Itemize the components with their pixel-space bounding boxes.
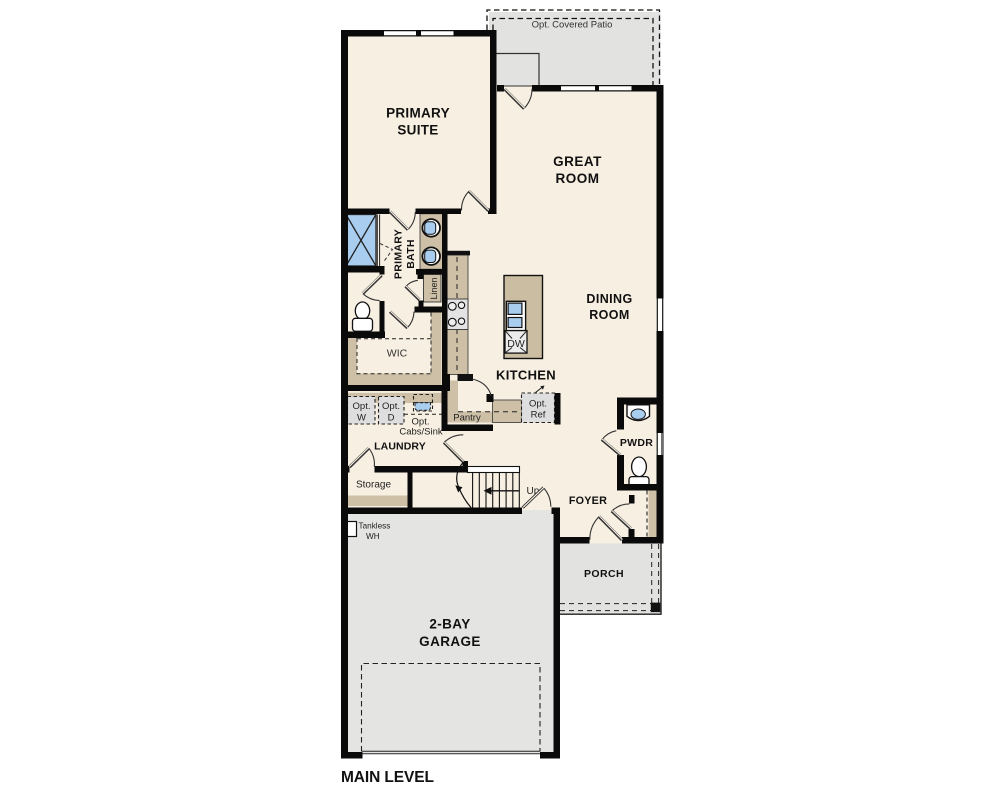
svg-text:ROOM: ROOM: [556, 171, 600, 186]
svg-text:PORCH: PORCH: [584, 568, 624, 580]
svg-text:WH: WH: [366, 532, 380, 541]
svg-text:WIC: WIC: [387, 348, 408, 360]
svg-text:ROOM: ROOM: [589, 308, 630, 322]
svg-text:2-BAY: 2-BAY: [429, 617, 470, 632]
svg-text:Tankless: Tankless: [359, 522, 391, 531]
svg-text:Opt. Covered Patio: Opt. Covered Patio: [532, 20, 613, 31]
svg-text:GARAGE: GARAGE: [419, 634, 481, 649]
svg-text:Opt.: Opt.: [382, 401, 400, 412]
svg-text:KITCHEN: KITCHEN: [496, 368, 556, 383]
svg-text:Ref: Ref: [531, 410, 546, 421]
svg-text:SUITE: SUITE: [397, 123, 438, 138]
svg-text:Cabs/Sink: Cabs/Sink: [399, 427, 443, 438]
svg-text:GREAT: GREAT: [553, 154, 602, 169]
svg-text:LAUNDRY: LAUNDRY: [374, 441, 426, 453]
svg-text:FOYER: FOYER: [569, 495, 607, 507]
svg-text:PRIMARY: PRIMARY: [393, 229, 405, 279]
svg-text:DW: DW: [507, 338, 525, 350]
svg-text:BATH: BATH: [405, 239, 417, 269]
svg-text:D: D: [388, 413, 395, 424]
svg-text:Storage: Storage: [356, 480, 391, 491]
svg-text:DINING: DINING: [586, 292, 632, 306]
svg-text:W: W: [357, 413, 366, 424]
svg-text:MAIN LEVEL: MAIN LEVEL: [341, 769, 434, 786]
svg-text:Opt.: Opt.: [529, 399, 547, 410]
svg-text:PRIMARY: PRIMARY: [386, 106, 450, 121]
svg-text:Linen: Linen: [429, 277, 439, 299]
svg-text:PWDR: PWDR: [620, 437, 653, 449]
svg-text:Opt.: Opt.: [353, 401, 371, 412]
svg-text:Pantry: Pantry: [453, 413, 481, 424]
